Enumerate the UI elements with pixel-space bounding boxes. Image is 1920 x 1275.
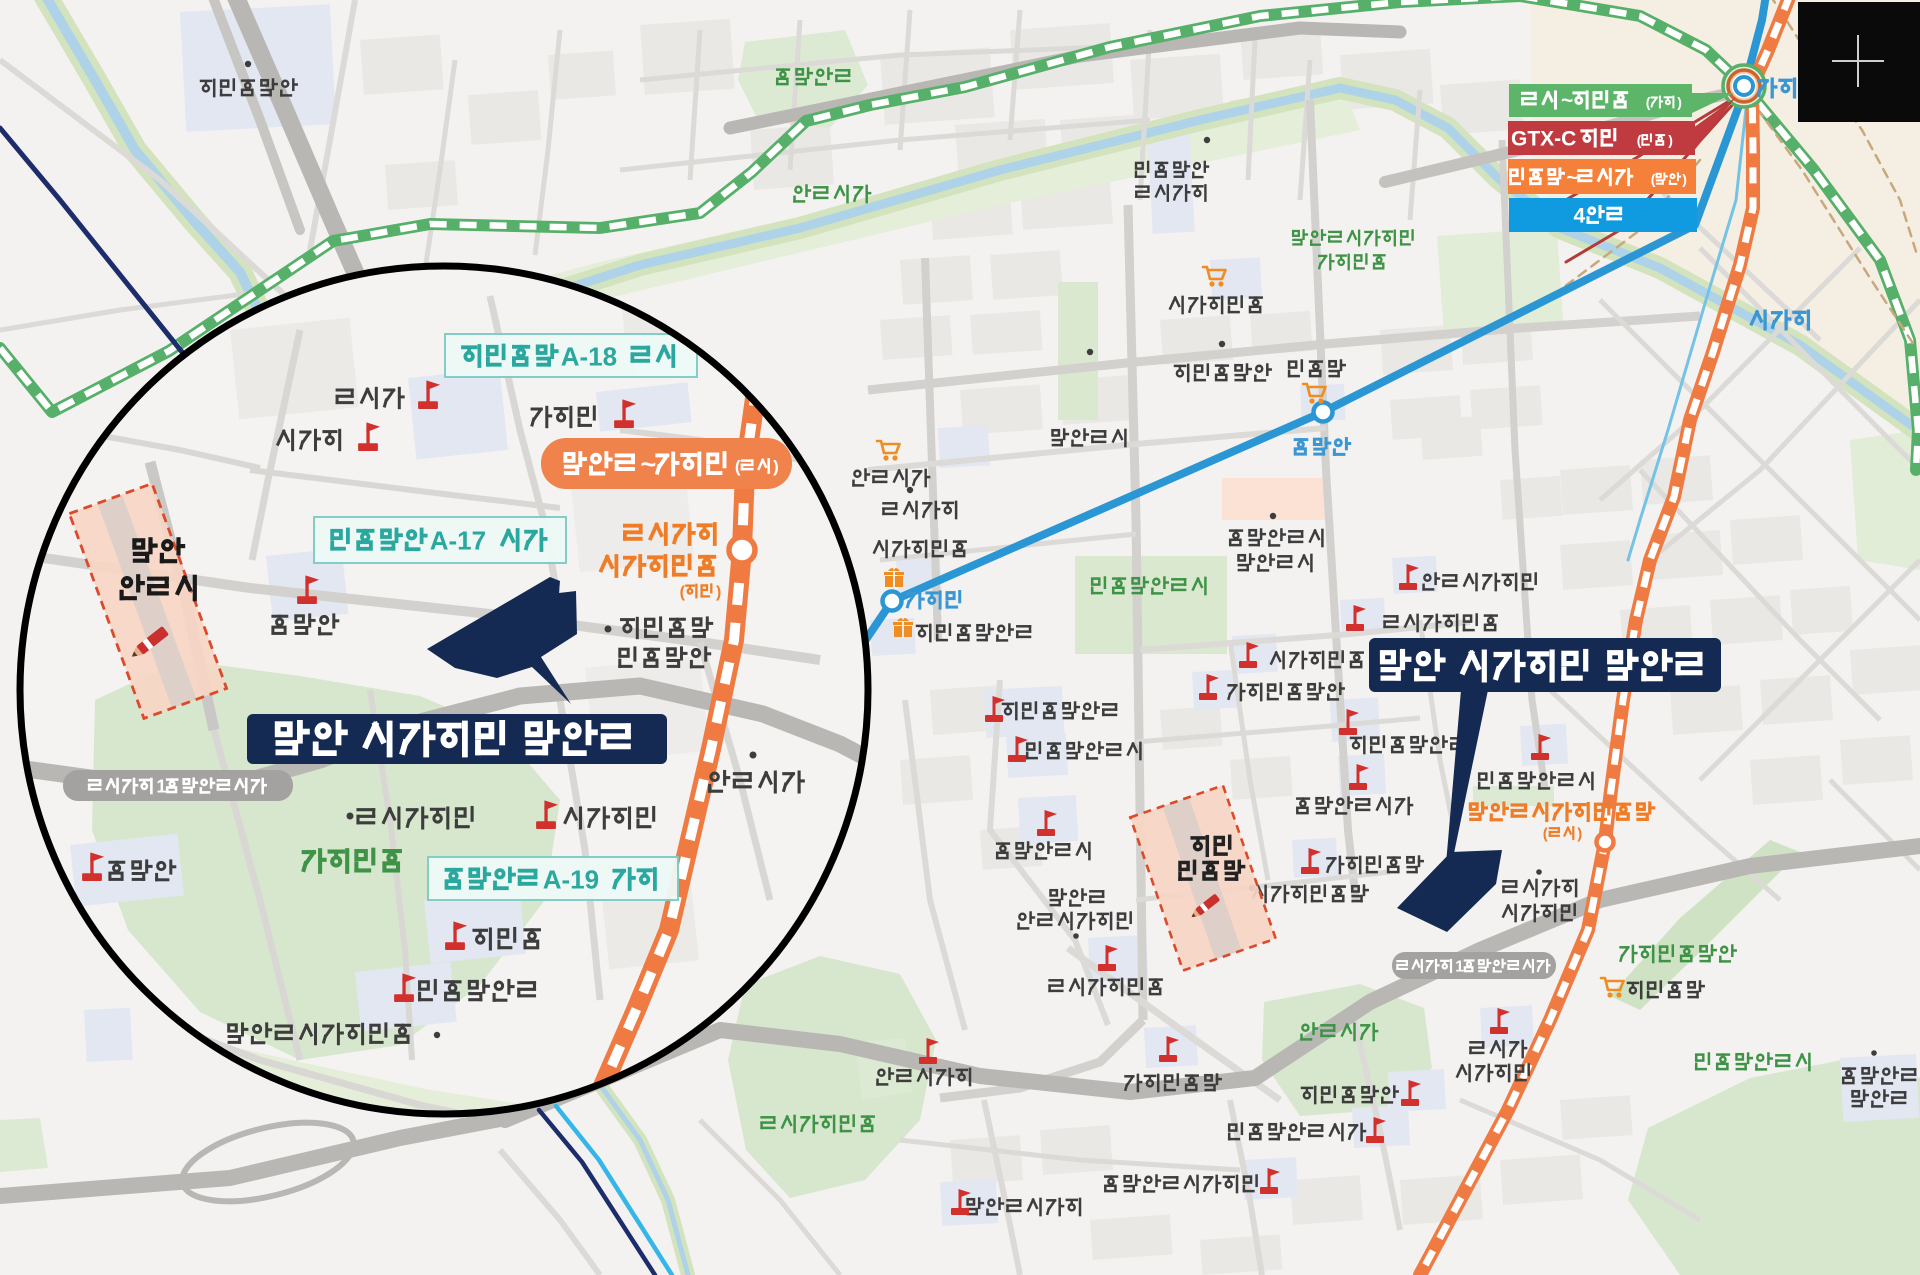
svg-text:A-17: A-17 [430,525,486,555]
svg-text:(: ( [1637,132,1642,148]
svg-text:~: ~ [641,450,657,480]
svg-text:A-18: A-18 [561,341,617,371]
svg-text:(: ( [680,584,686,601]
svg-text:4: 4 [1574,205,1586,228]
svg-text:(: ( [1543,825,1548,842]
svg-text:(: ( [1646,94,1651,110]
svg-text:(: ( [1651,171,1656,187]
svg-text:~: ~ [1561,90,1573,113]
svg-text:(: ( [735,457,741,476]
svg-text:): ) [773,457,779,476]
svg-text:1: 1 [1455,959,1464,976]
svg-text:): ) [716,584,721,601]
svg-text:): ) [1682,171,1687,187]
svg-text:): ) [1677,94,1682,110]
svg-text:A-19: A-19 [543,864,599,894]
svg-text:): ) [1577,825,1582,842]
svg-text:1: 1 [156,777,166,797]
svg-text:~: ~ [1567,167,1579,189]
svg-text:): ) [1668,132,1673,148]
svg-text:GTX-C: GTX-C [1511,128,1576,151]
